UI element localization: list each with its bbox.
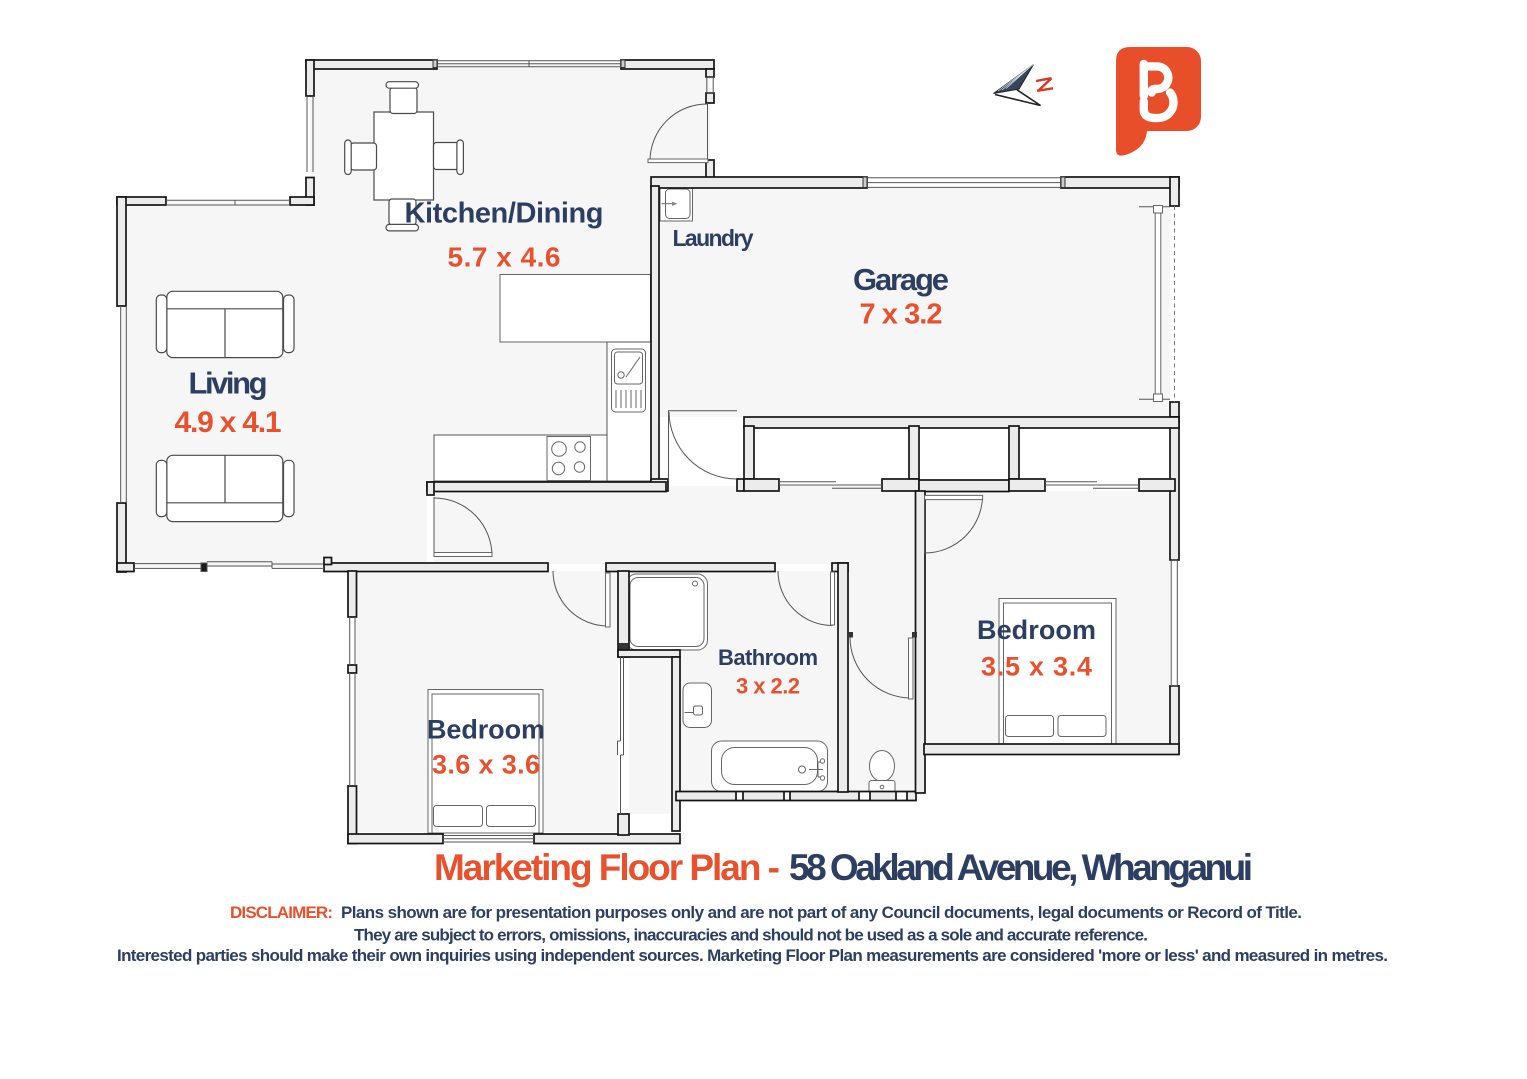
svg-text:7 x 3.2: 7 x 3.2: [860, 299, 943, 331]
svg-text:5.7 x 4.6: 5.7 x 4.6: [448, 242, 561, 273]
svg-text:Bathroom: Bathroom: [718, 645, 818, 670]
svg-text:Interested parties should make: Interested parties should make their own…: [117, 946, 1388, 965]
svg-text:Marketing Floor Plan -58 Oakla: Marketing Floor Plan -58 Oakland Avenue,…: [434, 847, 1253, 888]
svg-text:Bedroom: Bedroom: [977, 615, 1096, 645]
svg-text:Laundry: Laundry: [673, 225, 754, 251]
svg-text:Bedroom: Bedroom: [427, 715, 545, 745]
svg-text:Kitchen/Dining: Kitchen/Dining: [405, 198, 604, 230]
svg-text:3.5 x 3.4: 3.5 x 3.4: [981, 652, 1092, 682]
svg-text:3.6 x 3.6: 3.6 x 3.6: [432, 750, 540, 780]
svg-text:DISCLAIMER:Plans shown are for: DISCLAIMER:Plans shown are for presentat…: [230, 903, 1302, 922]
svg-text:They are subject to errors, om: They are subject to errors, omissions, i…: [354, 926, 1148, 945]
svg-text:Garage: Garage: [853, 262, 949, 297]
svg-text:Living: Living: [189, 366, 268, 401]
svg-text:3 x 2.2: 3 x 2.2: [736, 674, 800, 699]
svg-text:4.9 x 4.1: 4.9 x 4.1: [175, 406, 282, 439]
